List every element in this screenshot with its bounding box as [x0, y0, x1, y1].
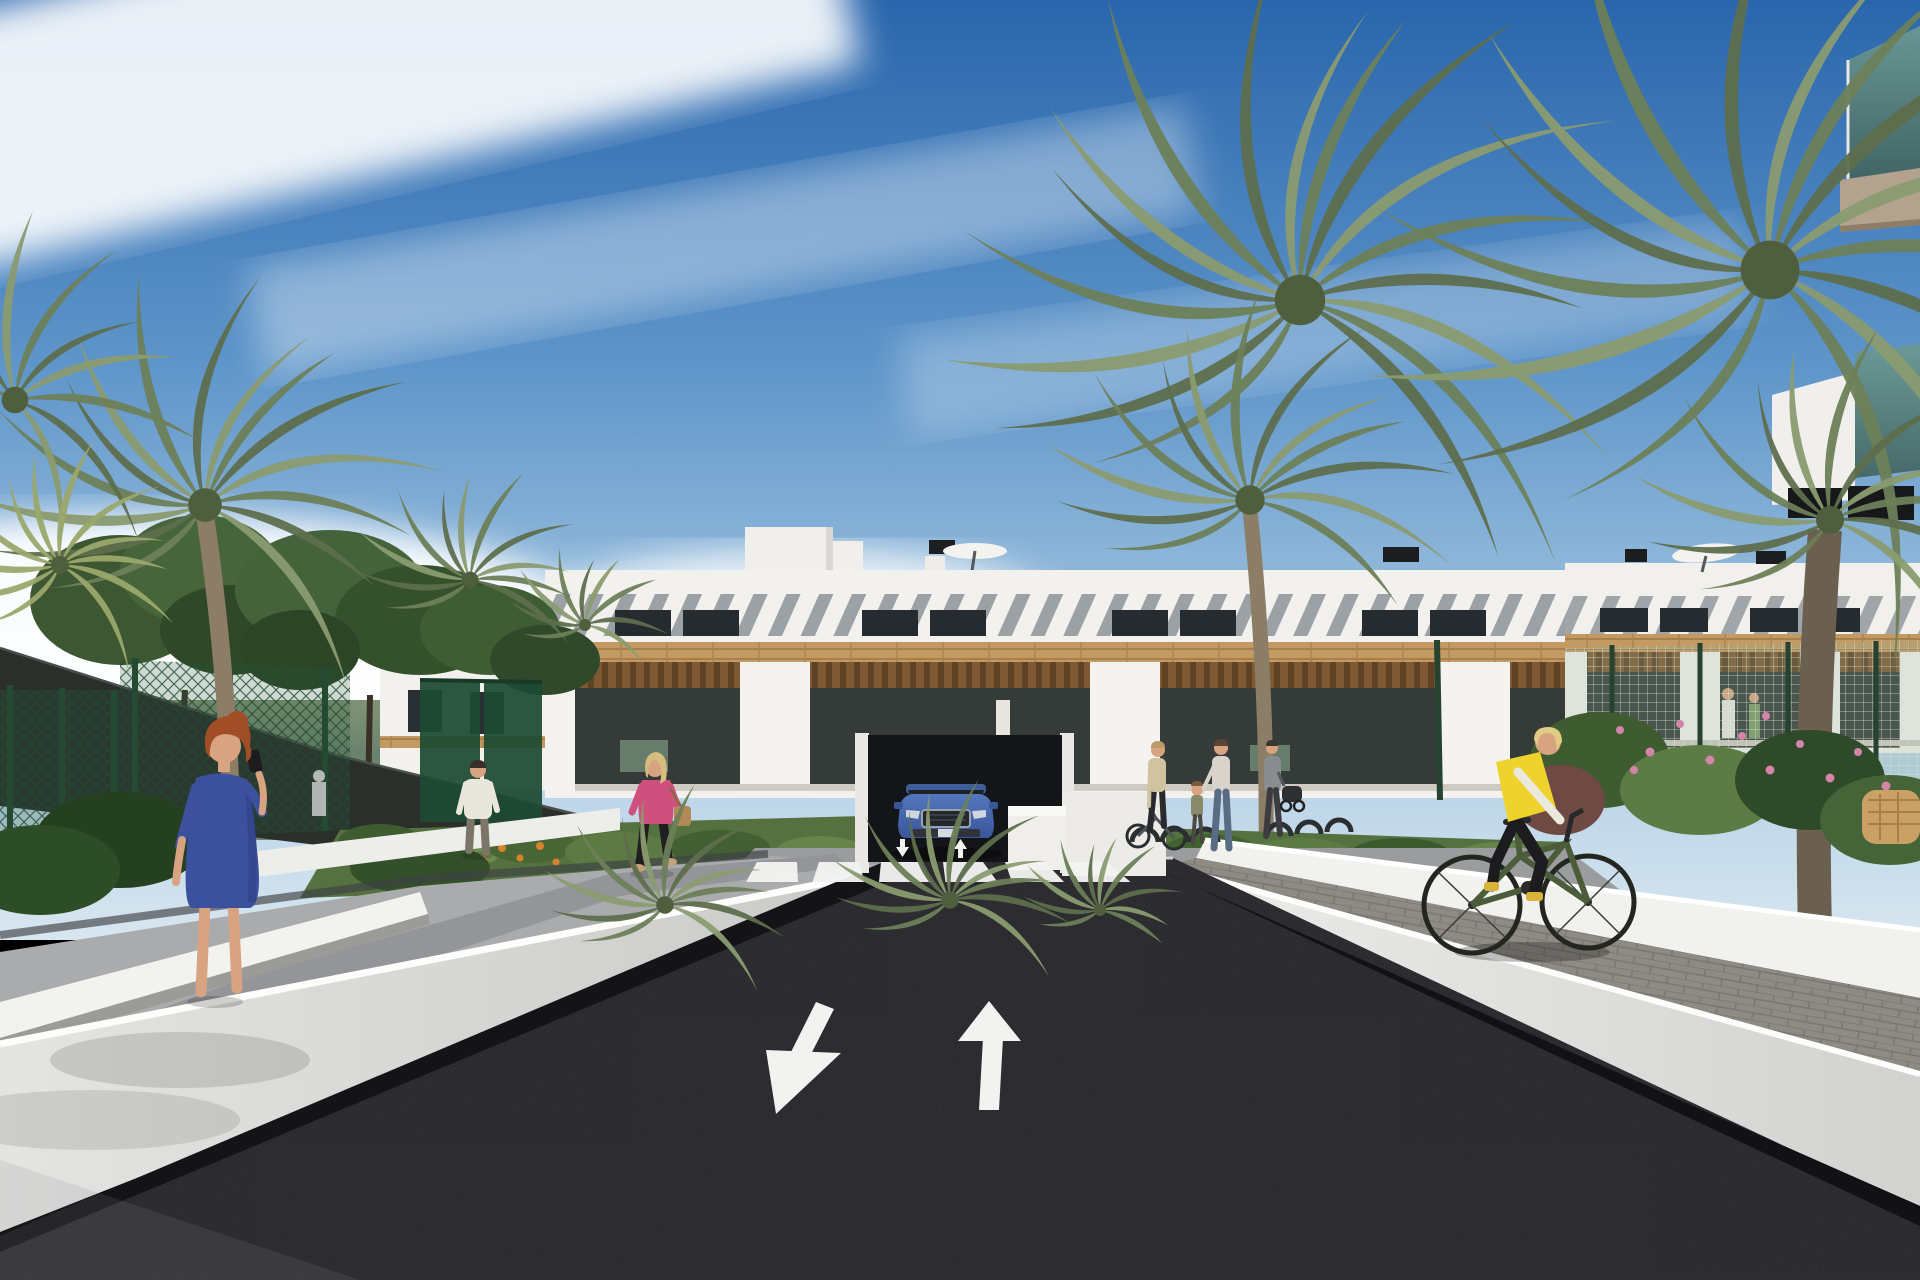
stroller [1282, 786, 1302, 802]
roof-vent [1383, 547, 1419, 562]
architectural-render: Sunny 3D architectural render of a moder… [0, 0, 1920, 1280]
court-figure [312, 770, 326, 816]
yellow-shoe [1526, 892, 1543, 901]
yellow-shoe [1484, 882, 1499, 891]
crosswalk-stripe [813, 862, 865, 882]
child [1192, 785, 1203, 796]
wicker-chair [1862, 790, 1920, 844]
terrace-figure [996, 700, 1010, 736]
palm-trunk [1814, 530, 1825, 930]
roof-stair-tower [745, 527, 833, 573]
timber-band [545, 642, 1565, 662]
